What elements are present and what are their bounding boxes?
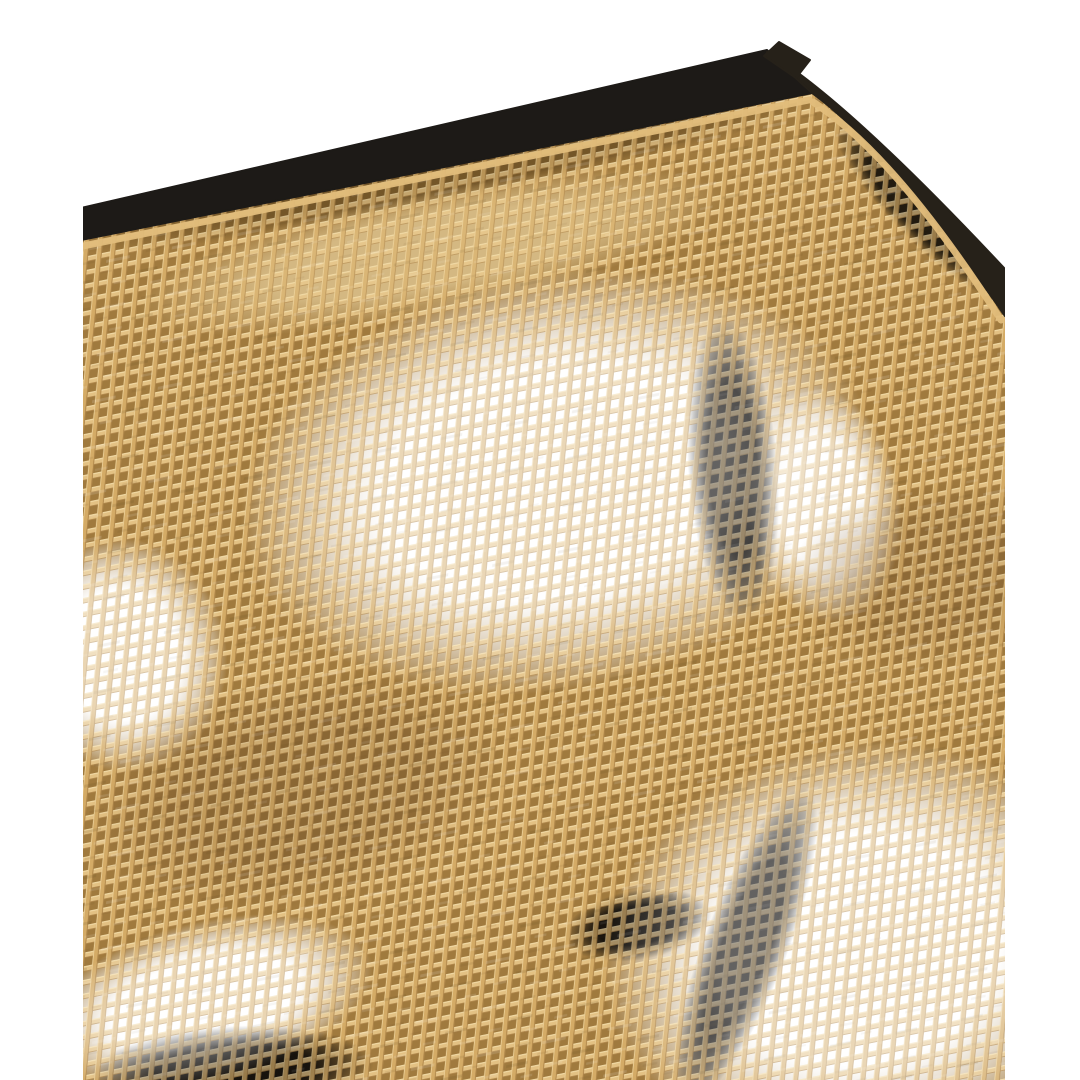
cane-panel-image (0, 0, 1080, 1080)
product-photo (0, 0, 1080, 1080)
